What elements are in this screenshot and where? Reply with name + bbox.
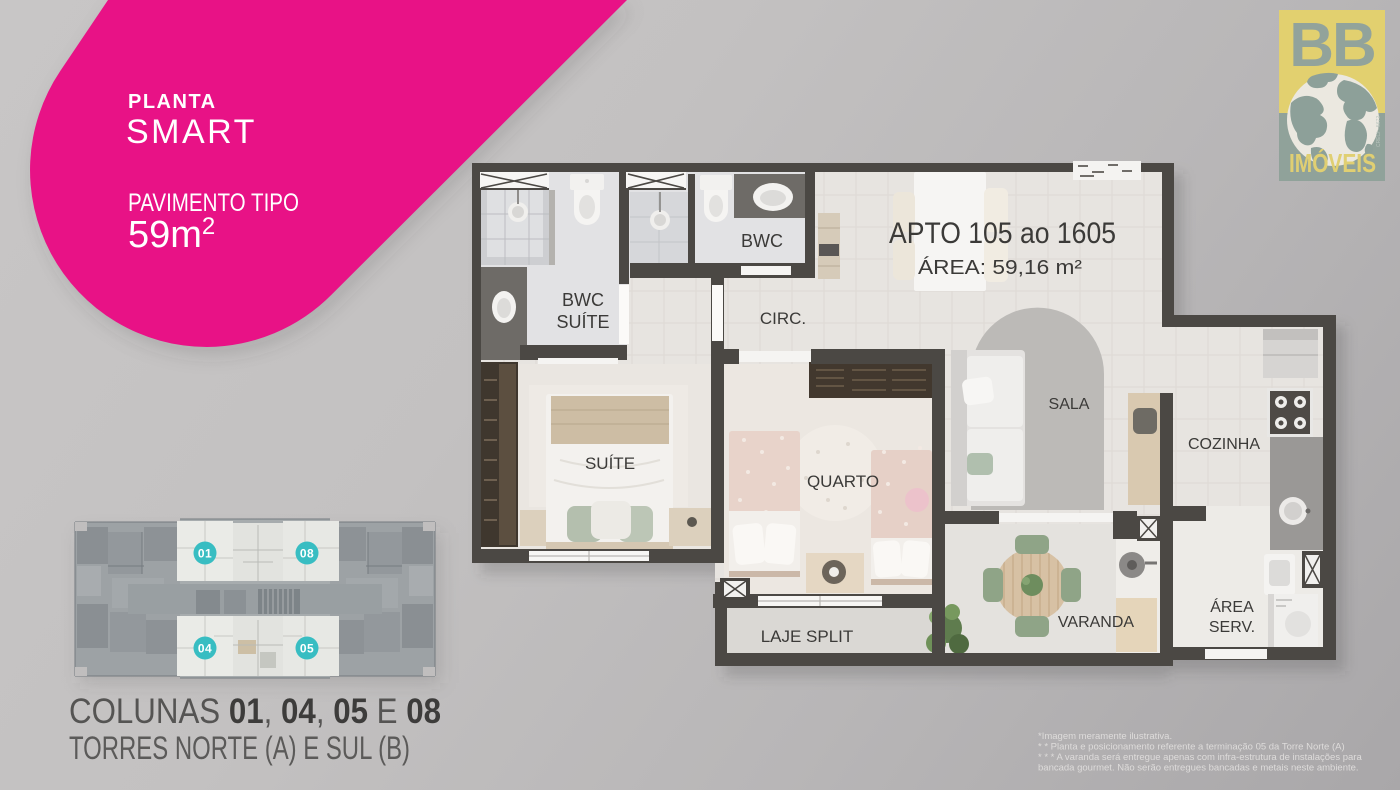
svg-text:BWC: BWC	[562, 290, 604, 310]
svg-text:SERV.: SERV.	[1209, 619, 1255, 636]
svg-text:SMART: SMART	[126, 113, 257, 151]
svg-text:BWC: BWC	[741, 231, 783, 251]
svg-text:VARANDA: VARANDA	[1058, 614, 1134, 631]
svg-text:COZINHA: COZINHA	[1188, 436, 1260, 453]
svg-text:04: 04	[198, 642, 212, 656]
svg-text:PLANTA: PLANTA	[128, 91, 217, 113]
svg-text:08: 08	[300, 547, 314, 561]
svg-text:CIRC.: CIRC.	[760, 309, 806, 328]
svg-text:*Imagem meramente ilustrativa.: *Imagem meramente ilustrativa.	[1038, 731, 1172, 742]
svg-text:COLUNAS 01, 04, 05 E 08: COLUNAS 01, 04, 05 E 08	[69, 692, 441, 731]
svg-text:CRECI - 5672: CRECI - 5672	[1376, 116, 1382, 147]
svg-text:05: 05	[300, 642, 314, 656]
svg-text:BB: BB	[1289, 11, 1375, 80]
svg-text:QUARTO: QUARTO	[807, 472, 879, 491]
svg-text:bancada gourmet. Não serão ent: bancada gourmet. Não serão entregues ban…	[1038, 763, 1359, 774]
svg-text:SALA: SALA	[1049, 396, 1090, 413]
svg-text:01: 01	[198, 547, 212, 561]
svg-text:ÁREA: ÁREA	[1210, 597, 1254, 616]
svg-text:LAJE SPLIT: LAJE SPLIT	[761, 627, 854, 646]
svg-text:SUÍTE: SUÍTE	[556, 312, 609, 332]
svg-text:* * Planta e posicionamento re: * * Planta e posicionamento referente a …	[1038, 742, 1345, 753]
svg-text:* * * A varanda será entregue: * * * A varanda será entregue apenas com…	[1038, 752, 1362, 763]
svg-text:APTO 105 ao 1605: APTO 105 ao 1605	[889, 217, 1116, 250]
svg-text:IMÓVEIS: IMÓVEIS	[1289, 148, 1376, 178]
svg-text:SUÍTE: SUÍTE	[585, 454, 635, 473]
svg-text:TORRES NORTE (A) E SUL (B): TORRES NORTE (A) E SUL (B)	[69, 730, 410, 766]
svg-text:ÁREA: 59,16 m²: ÁREA: 59,16 m²	[918, 256, 1082, 279]
